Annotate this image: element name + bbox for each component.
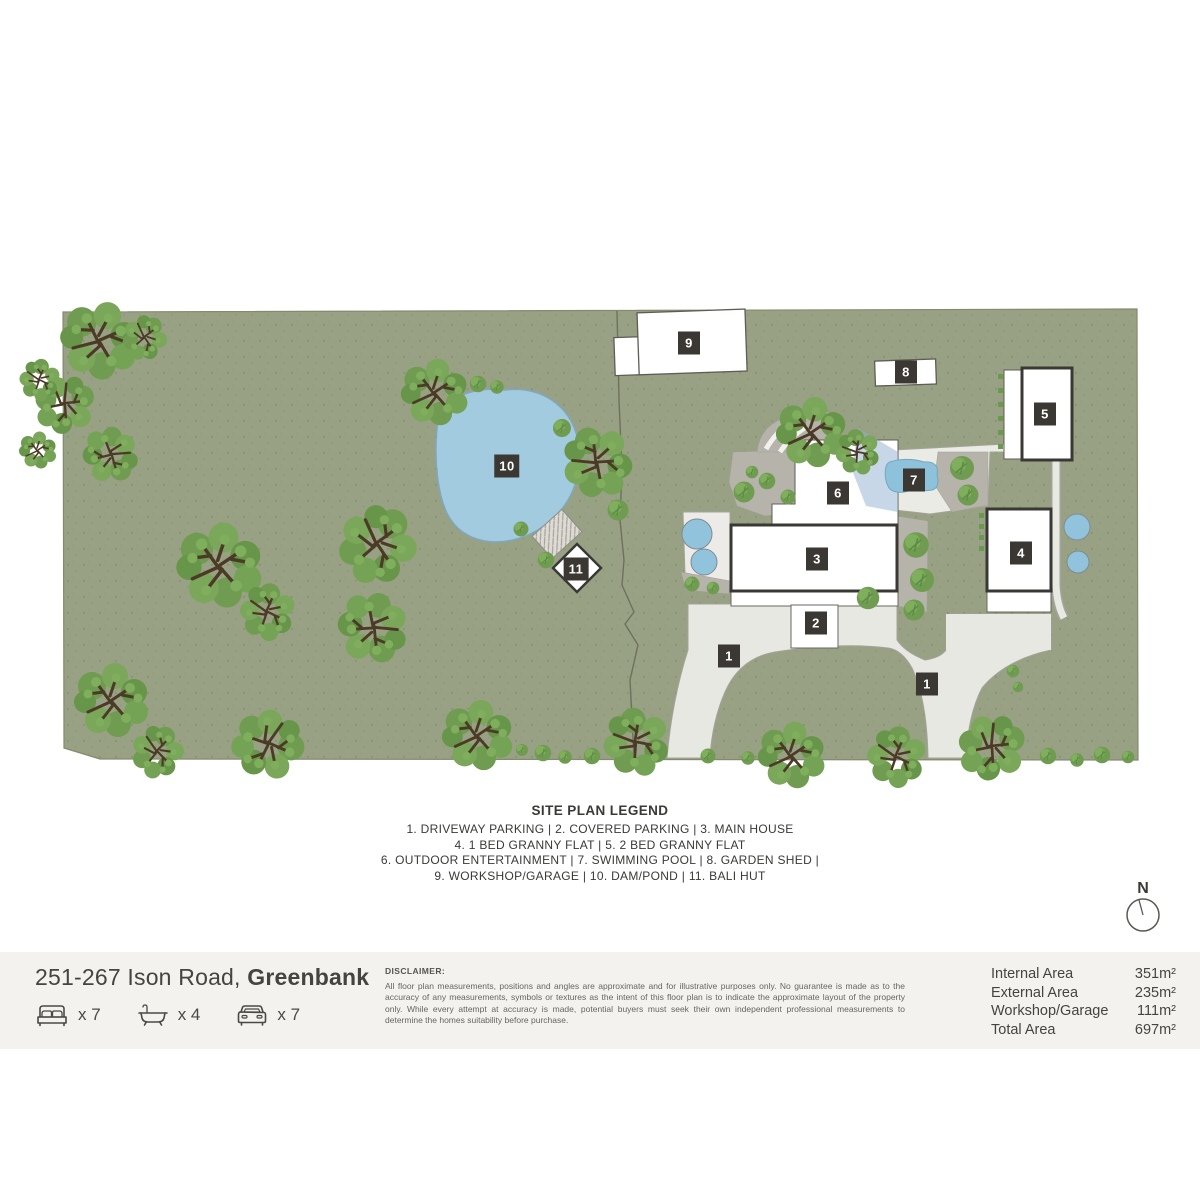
driveway-east bbox=[946, 614, 1051, 650]
plan-marker-2: 2 bbox=[805, 612, 827, 635]
area-row: Internal Area 351m² bbox=[991, 965, 1176, 984]
area-value: 235m² bbox=[1135, 984, 1176, 1003]
address-block: 251-267 Ison Road, Greenbank x 7 bbox=[35, 964, 385, 1027]
granny-flat-5-porch bbox=[1004, 370, 1022, 459]
plan-marker-10: 10 bbox=[494, 455, 519, 478]
bed-icon bbox=[35, 1003, 69, 1027]
legend-line: 9. WORKSHOP/GARAGE | 10. DAM/POND | 11. … bbox=[0, 869, 1200, 885]
footer-bar: 251-267 Ison Road, Greenbank x 7 bbox=[0, 952, 1200, 1049]
plan-marker-11: 11 bbox=[564, 558, 589, 581]
area-value: 697m² bbox=[1135, 1021, 1176, 1040]
legend-line: 4. 1 BED GRANNY FLAT | 5. 2 BED GRANNY F… bbox=[0, 838, 1200, 854]
disclaimer-body: All floor plan measurements, positions a… bbox=[385, 981, 905, 1027]
disclaimer: DISCLAIMER: All floor plan measurements,… bbox=[385, 966, 905, 1027]
plan-marker-7: 7 bbox=[903, 469, 925, 492]
area-row: Workshop/Garage 111m² bbox=[991, 1002, 1176, 1021]
area-summary: Internal Area 351m² External Area 235m² … bbox=[991, 965, 1176, 1039]
plan-marker-4: 4 bbox=[1010, 542, 1032, 565]
bedrooms-feature: x 7 bbox=[35, 1003, 101, 1027]
bed-count: x 7 bbox=[78, 1005, 101, 1025]
address-street: 251-267 Ison Road, bbox=[35, 964, 247, 990]
bath-icon bbox=[137, 1003, 169, 1027]
plan-marker-1: 1 bbox=[718, 645, 740, 668]
page: 98576101132411 SITE PLAN LEGEND 1. DRIVE… bbox=[0, 0, 1200, 1200]
plan-marker-9: 9 bbox=[678, 332, 700, 355]
disclaimer-title: DISCLAIMER: bbox=[385, 966, 905, 976]
legend-title: SITE PLAN LEGEND bbox=[0, 803, 1200, 818]
legend-line: 6. OUTDOOR ENTERTAINMENT | 7. SWIMMING P… bbox=[0, 853, 1200, 869]
car-icon bbox=[236, 1003, 268, 1027]
property-address: 251-267 Ison Road, Greenbank bbox=[35, 964, 385, 991]
area-label: Workshop/Garage bbox=[991, 1002, 1108, 1021]
bath-count: x 4 bbox=[178, 1005, 201, 1025]
cars-feature: x 7 bbox=[236, 1003, 300, 1027]
area-row: External Area 235m² bbox=[991, 984, 1176, 1003]
area-label: Total Area bbox=[991, 1021, 1056, 1040]
plan-marker-3: 3 bbox=[806, 548, 828, 571]
compass-icon bbox=[1127, 899, 1159, 931]
plan-marker-6: 6 bbox=[827, 482, 849, 505]
area-row: Total Area 697m² bbox=[991, 1021, 1176, 1040]
area-value: 111m² bbox=[1137, 1002, 1176, 1021]
plan-marker-1: 1 bbox=[916, 673, 938, 696]
car-count: x 7 bbox=[277, 1005, 300, 1025]
site-plan-legend: SITE PLAN LEGEND 1. DRIVEWAY PARKING | 2… bbox=[0, 803, 1200, 884]
area-label: External Area bbox=[991, 984, 1078, 1003]
feature-counts: x 7 x 4 bbox=[35, 1003, 385, 1027]
area-value: 351m² bbox=[1135, 965, 1176, 984]
compass-north-label: N bbox=[1137, 880, 1149, 898]
bathrooms-feature: x 4 bbox=[137, 1003, 201, 1027]
legend-line: 1. DRIVEWAY PARKING | 2. COVERED PARKING… bbox=[0, 822, 1200, 838]
granny-flat-4-porch bbox=[987, 591, 1051, 612]
plan-marker-8: 8 bbox=[895, 361, 917, 384]
address-suburb: Greenbank bbox=[247, 964, 369, 990]
area-label: Internal Area bbox=[991, 965, 1073, 984]
plan-marker-5: 5 bbox=[1034, 403, 1056, 426]
